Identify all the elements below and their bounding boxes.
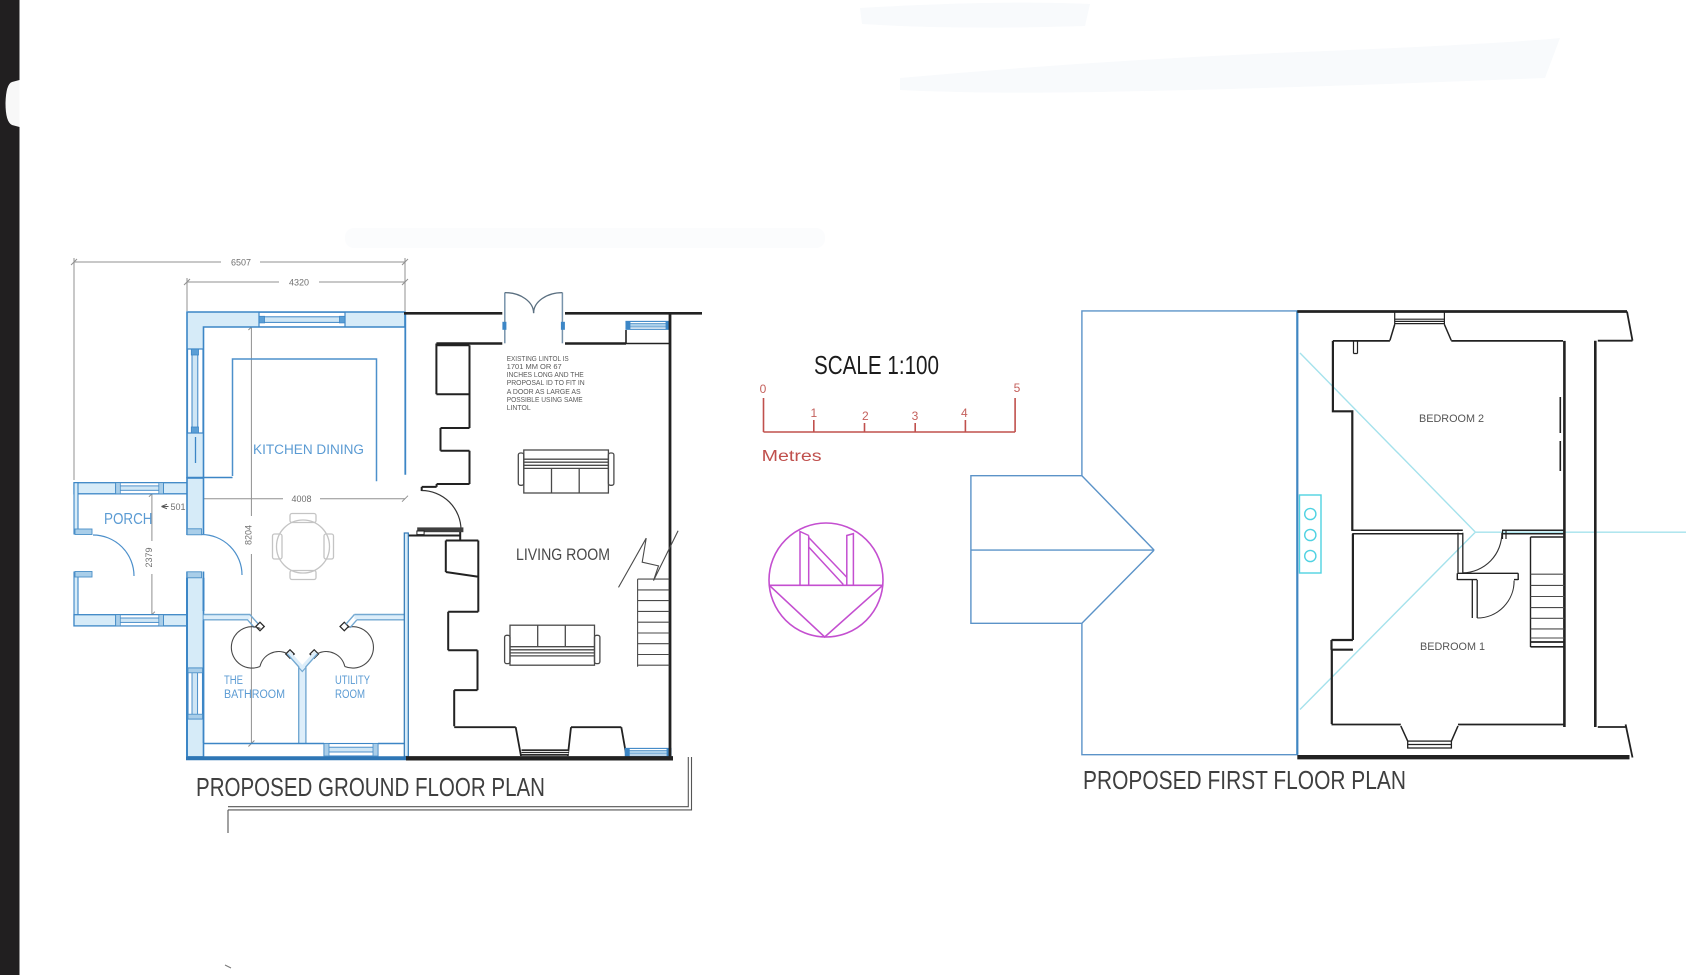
svg-text:ROOM: ROOM	[335, 689, 365, 701]
svg-text:3: 3	[912, 409, 919, 423]
svg-text:501: 501	[171, 502, 186, 512]
svg-text:BATHROOM: BATHROOM	[224, 689, 285, 701]
svg-text:5: 5	[1014, 381, 1021, 395]
svg-text:4320: 4320	[289, 278, 309, 288]
svg-text:A DOOR AS LARGE AS: A DOOR AS LARGE AS	[507, 389, 581, 396]
svg-text:BEDROOM 1: BEDROOM 1	[1420, 641, 1485, 653]
svg-text:PROPOSED GROUND FLOOR PLAN: PROPOSED GROUND FLOOR PLAN	[196, 772, 545, 802]
svg-text:0: 0	[760, 382, 767, 396]
svg-text:4008: 4008	[291, 494, 311, 504]
svg-text:1701 MM OR 67: 1701 MM OR 67	[507, 364, 562, 371]
svg-text:LINTOL: LINTOL	[507, 405, 531, 412]
svg-text:PROPOSED FIRST FLOOR PLAN: PROPOSED FIRST FLOOR PLAN	[1083, 765, 1406, 795]
svg-text:PORCH: PORCH	[104, 511, 153, 528]
svg-text:2379: 2379	[144, 547, 154, 567]
svg-text:PROPOSAL ID TO FIT IN: PROPOSAL ID TO FIT IN	[507, 380, 585, 387]
svg-text:KITCHEN DINING: KITCHEN DINING	[253, 442, 364, 457]
svg-text:4: 4	[961, 406, 968, 420]
svg-text:1: 1	[810, 406, 817, 420]
svg-text:LIVING ROOM: LIVING ROOM	[516, 546, 610, 564]
svg-text:BEDROOM 2: BEDROOM 2	[1419, 413, 1484, 425]
svg-text:2: 2	[862, 409, 869, 423]
svg-text:SCALE 1:100: SCALE 1:100	[814, 350, 939, 380]
svg-text:Metres: Metres	[762, 448, 822, 465]
svg-text:THE: THE	[224, 675, 243, 687]
svg-text:POSSIBLE USING SAME: POSSIBLE USING SAME	[507, 397, 583, 404]
svg-text:8204: 8204	[243, 525, 253, 545]
svg-text:EXISTING LINTOL IS: EXISTING LINTOL IS	[507, 356, 569, 363]
svg-text:UTILITY: UTILITY	[335, 675, 370, 687]
svg-text:INCHES LONG AND THE: INCHES LONG AND THE	[507, 372, 584, 379]
svg-text:6507: 6507	[231, 258, 251, 268]
